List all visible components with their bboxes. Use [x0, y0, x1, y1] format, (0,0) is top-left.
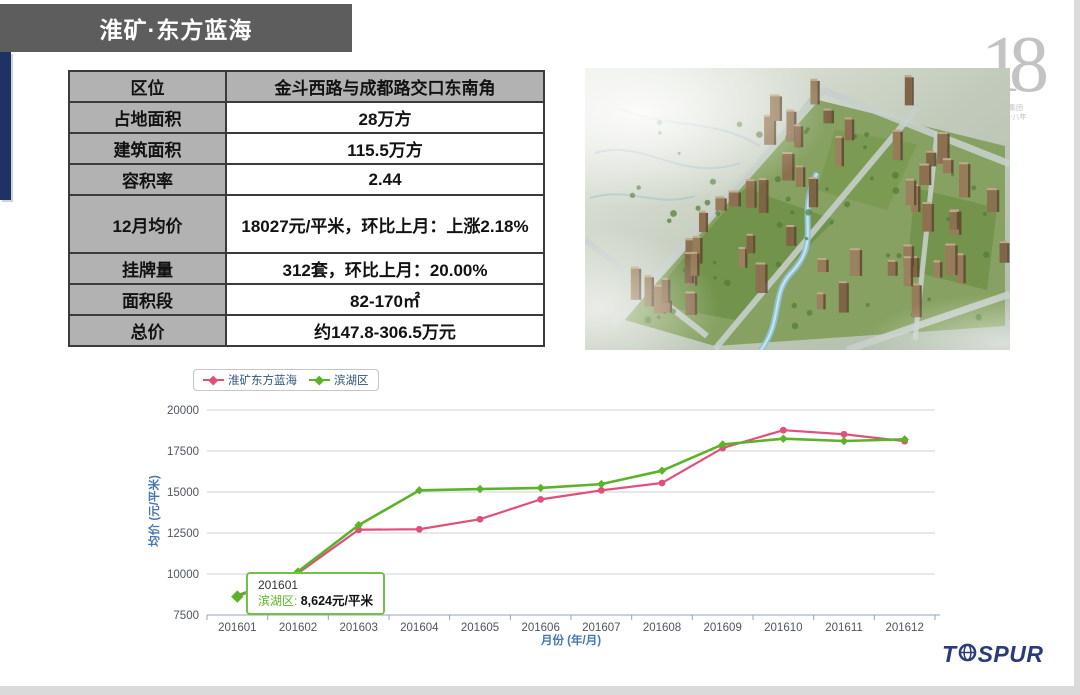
- info-table-label: 占地面积: [69, 102, 226, 133]
- left-accent-bar: [0, 52, 11, 200]
- data-point[interactable]: [841, 431, 848, 438]
- rendering-art: [585, 68, 1010, 350]
- info-table-value: 2.44: [226, 164, 544, 195]
- legend-label-district: 滨湖区: [334, 372, 369, 388]
- info-table-value: 18027元/平米，环比上月：上涨2.18%: [226, 195, 544, 253]
- info-table-label: 建筑面积: [69, 133, 226, 164]
- chart-legend[interactable]: 淮矿东方蓝海 滨湖区: [193, 369, 379, 391]
- chart-tooltip: 201601 滨湖区: 8,624元/平米: [246, 572, 385, 615]
- tospur-logo: TSPUR: [942, 641, 1043, 668]
- info-table-row: 总价约147.8-306.5万元: [69, 315, 544, 346]
- data-point[interactable]: [477, 516, 484, 523]
- info-table-value: 金斗西路与成都路交口东南角: [226, 71, 544, 102]
- data-point[interactable]: [658, 466, 666, 474]
- tooltip-title: 201601: [258, 577, 373, 593]
- info-table-row: 占地面积28万方: [69, 102, 544, 133]
- tooltip-series-label: 滨湖区:: [258, 594, 297, 608]
- legend-marker-project-icon: [203, 376, 224, 385]
- legend-item-district[interactable]: 滨湖区: [309, 372, 369, 388]
- globe-icon: [958, 641, 977, 668]
- y-tick-label: 20000: [167, 405, 199, 417]
- data-point[interactable]: [537, 496, 544, 503]
- slide-edge-bottom: [0, 686, 1080, 695]
- info-table-value: 312套，环比上月：20.00%: [226, 253, 544, 284]
- site-rendering-image: [585, 68, 1010, 350]
- data-point[interactable]: [416, 526, 423, 533]
- data-point[interactable]: [231, 590, 243, 602]
- y-tick-label: 17500: [167, 446, 199, 458]
- slide: 淮矿·东方蓝海 区位金斗西路与成都路交口东南角占地面积28万方建筑面积115.5…: [0, 0, 1080, 695]
- info-table-value: 115.5万方: [226, 133, 544, 164]
- data-point[interactable]: [536, 484, 544, 492]
- info-table-row: 区位金斗西路与成都路交口东南角: [69, 71, 544, 102]
- info-table: 区位金斗西路与成都路交口东南角占地面积28万方建筑面积115.5万方容积率2.4…: [68, 70, 545, 347]
- info-table-row: 挂牌量312套，环比上月：20.00%: [69, 253, 544, 284]
- y-tick-label: 7500: [173, 610, 199, 622]
- info-table-label: 12月均价: [69, 195, 226, 253]
- data-point[interactable]: [780, 427, 787, 434]
- y-tick-label: 15000: [167, 487, 199, 499]
- tooltip-value: 8,624元/平米: [301, 594, 373, 608]
- info-table-body: 区位金斗西路与成都路交口东南角占地面积28万方建筑面积115.5万方容积率2.4…: [69, 71, 544, 346]
- tospur-letter-t: T: [942, 641, 957, 668]
- page-title: 淮矿·东方蓝海: [100, 11, 253, 45]
- tooltip-row: 滨湖区: 8,624元/平米: [258, 593, 373, 609]
- data-point[interactable]: [779, 435, 787, 443]
- legend-item-project[interactable]: 淮矿东方蓝海: [203, 372, 297, 388]
- info-table-value: 28万方: [226, 102, 544, 133]
- data-point[interactable]: [659, 480, 666, 487]
- price-trend-chart: 淮矿东方蓝海 滨湖区 75001000012500150001750020000…: [140, 360, 954, 662]
- legend-label-project: 淮矿东方蓝海: [228, 372, 297, 388]
- info-table-value: 约147.8-306.5万元: [226, 315, 544, 346]
- series-line: [237, 430, 904, 595]
- info-table-value: 82-170㎡: [226, 284, 544, 315]
- tospur-letters-spur: SPUR: [978, 641, 1044, 668]
- page-title-bar: 淮矿·东方蓝海: [0, 4, 352, 52]
- data-point[interactable]: [840, 437, 848, 445]
- y-axis-title: 均价 (元/平米): [146, 431, 162, 591]
- info-table-row: 面积段82-170㎡: [69, 284, 544, 315]
- info-table-label: 容积率: [69, 164, 226, 195]
- y-tick-label: 10000: [167, 569, 199, 581]
- data-point[interactable]: [597, 480, 605, 488]
- legend-marker-district-icon: [309, 376, 330, 385]
- info-table-label: 挂牌量: [69, 253, 226, 284]
- info-table-label: 区位: [69, 71, 226, 102]
- info-table-row: 容积率2.44: [69, 164, 544, 195]
- x-axis-title: 月份 (年/月): [207, 632, 935, 648]
- info-table-label: 总价: [69, 315, 226, 346]
- info-table-row: 12月均价18027元/平米，环比上月：上涨2.18%: [69, 195, 544, 253]
- y-tick-label: 12500: [167, 528, 199, 540]
- info-table-row: 建筑面积115.5万方: [69, 133, 544, 164]
- info-table-label: 面积段: [69, 284, 226, 315]
- slide-edge-right: [1074, 0, 1080, 695]
